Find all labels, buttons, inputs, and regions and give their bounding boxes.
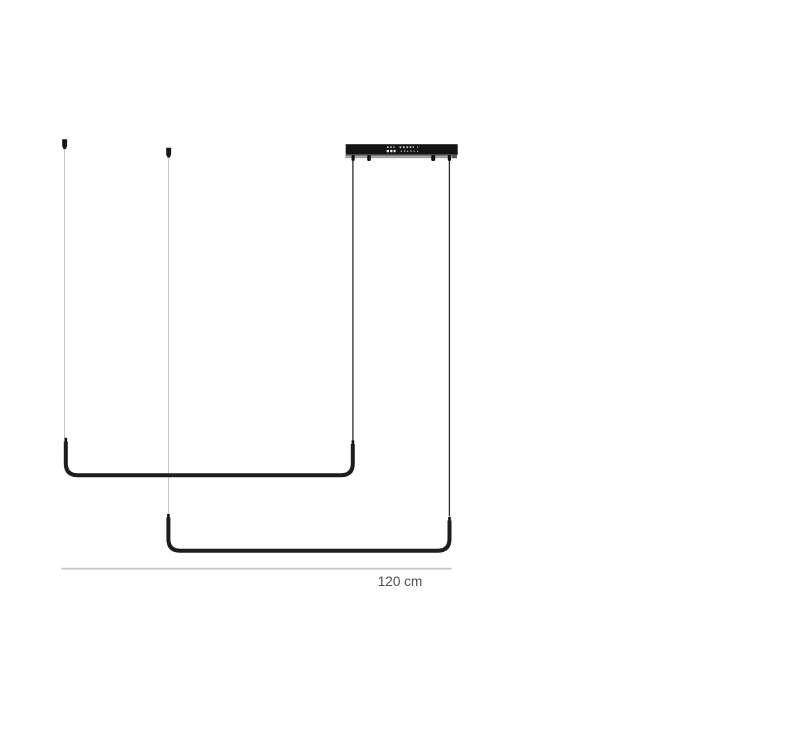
svg-text:120 cm: 120 cm [378,574,423,589]
